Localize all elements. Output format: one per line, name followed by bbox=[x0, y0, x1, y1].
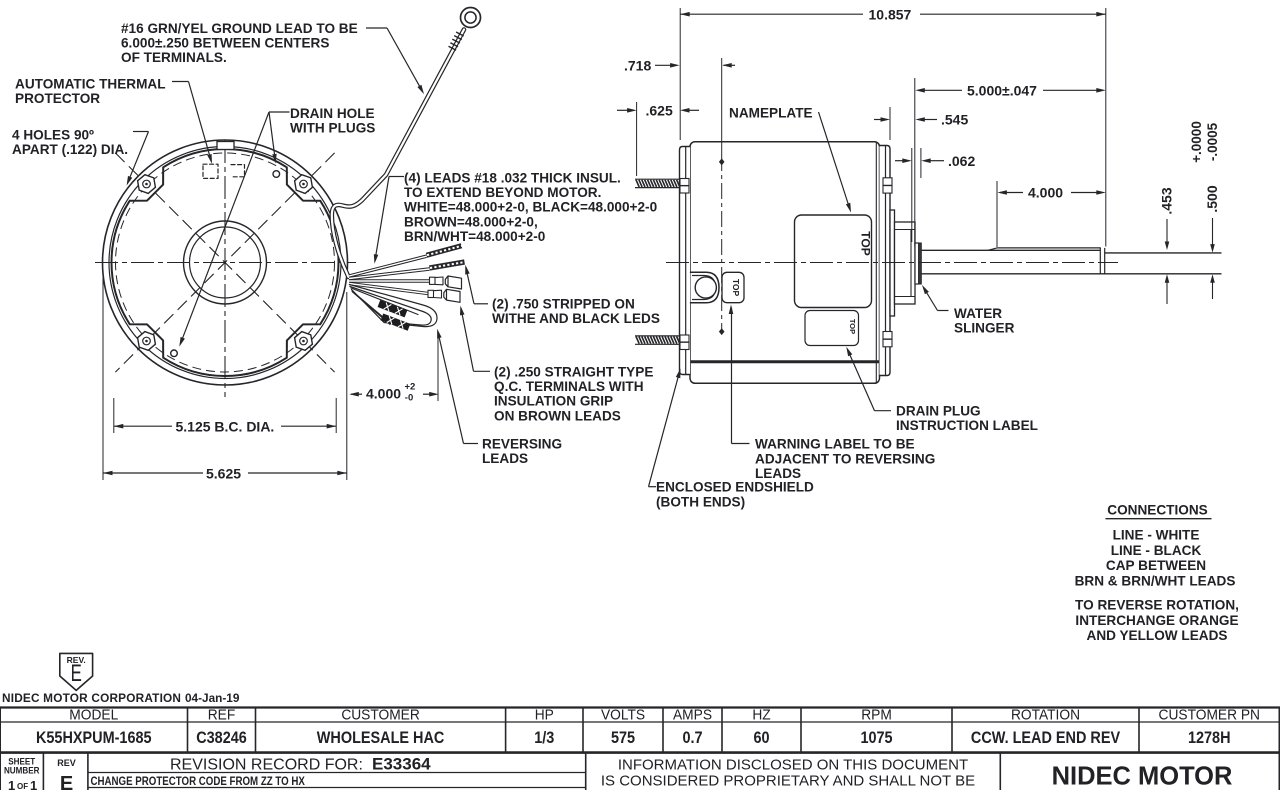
svg-text:10.857: 10.857 bbox=[869, 6, 912, 22]
svg-text:ROTATION: ROTATION bbox=[1011, 706, 1080, 722]
svg-text:(2) .250 STRAIGHT TYPE: (2) .250 STRAIGHT TYPE bbox=[494, 365, 653, 380]
svg-text:ON BROWN LEADS: ON BROWN LEADS bbox=[494, 408, 621, 423]
svg-text:WITHE AND BLACK LEDS: WITHE AND BLACK LEDS bbox=[492, 311, 660, 326]
svg-text:MODEL: MODEL bbox=[69, 706, 118, 722]
svg-text:.625: .625 bbox=[646, 103, 673, 119]
svg-text:RPM: RPM bbox=[861, 706, 892, 722]
svg-text:WATER: WATER bbox=[954, 306, 1002, 321]
svg-text:CUSTOMER: CUSTOMER bbox=[341, 706, 419, 722]
svg-text:.718: .718 bbox=[624, 58, 651, 74]
svg-text:1075: 1075 bbox=[860, 729, 892, 747]
svg-text:REVISION RECORD FOR:: REVISION RECORD FOR: bbox=[170, 757, 363, 774]
svg-text:+.0000: +.0000 bbox=[1189, 121, 1204, 163]
svg-text:.545: .545 bbox=[941, 112, 968, 128]
svg-text:WHOLESALE HAC: WHOLESALE HAC bbox=[317, 729, 445, 747]
svg-text:NAMEPLATE: NAMEPLATE bbox=[729, 105, 813, 120]
svg-text:INSTRUCTION LABEL: INSTRUCTION LABEL bbox=[896, 418, 1038, 433]
svg-text:E: E bbox=[71, 660, 82, 687]
svg-text:WITH PLUGS: WITH PLUGS bbox=[290, 121, 375, 136]
svg-text:575: 575 bbox=[611, 729, 635, 747]
svg-text:OF: OF bbox=[17, 782, 28, 790]
svg-text:4 HOLES 90º: 4 HOLES 90º bbox=[12, 128, 94, 143]
svg-text:1/3: 1/3 bbox=[534, 729, 554, 747]
svg-text:WHITE=48.000+2-0, BLACK=48.000: WHITE=48.000+2-0, BLACK=48.000+2-0 bbox=[404, 200, 657, 215]
svg-text:CHANGE PROTECTOR CODE FROM ZZ: CHANGE PROTECTOR CODE FROM ZZ TO HX bbox=[91, 775, 306, 788]
svg-text:DRAIN HOLE: DRAIN HOLE bbox=[290, 106, 375, 121]
svg-text:5.125 B.C. DIA.: 5.125 B.C. DIA. bbox=[176, 419, 275, 435]
svg-text:#16 GRN/YEL GROUND LEAD TO BE: #16 GRN/YEL GROUND LEAD TO BE bbox=[121, 21, 358, 36]
svg-text:PROTECTOR: PROTECTOR bbox=[15, 91, 100, 106]
svg-text:.453: .453 bbox=[1159, 187, 1175, 214]
svg-text:1: 1 bbox=[8, 778, 15, 790]
svg-text:6.000±.250 BETWEEN CENTERS: 6.000±.250 BETWEEN CENTERS bbox=[121, 36, 329, 51]
svg-text:(2) .750 STRIPPED ON: (2) .750 STRIPPED ON bbox=[492, 297, 635, 312]
svg-text:5.000±.047: 5.000±.047 bbox=[967, 83, 1037, 99]
svg-text:IS CONSIDERED PROPRIETARY AND: IS CONSIDERED PROPRIETARY AND SHALL NOT … bbox=[601, 773, 975, 790]
svg-text:TOP: TOP bbox=[859, 231, 873, 255]
svg-text:NIDEC MOTOR: NIDEC MOTOR bbox=[1052, 763, 1233, 790]
svg-text:REVERSING: REVERSING bbox=[482, 437, 562, 452]
svg-text:VOLTS: VOLTS bbox=[601, 706, 645, 722]
svg-text:CUSTOMER PN: CUSTOMER PN bbox=[1159, 706, 1260, 722]
svg-text:DRAIN PLUG: DRAIN PLUG bbox=[896, 404, 981, 419]
svg-text:04-Jan-19: 04-Jan-19 bbox=[185, 691, 240, 705]
svg-text:INFORMATION DISCLOSED ON THIS: INFORMATION DISCLOSED ON THIS DOCUMENT bbox=[618, 757, 968, 774]
svg-text:E33364: E33364 bbox=[372, 755, 431, 774]
svg-text:OF TERMINALS.: OF TERMINALS. bbox=[121, 50, 227, 65]
svg-text:LINE - WHITE: LINE - WHITE bbox=[1113, 528, 1200, 543]
svg-text:TOP: TOP bbox=[731, 279, 741, 297]
svg-text:(BOTH ENDS): (BOTH ENDS) bbox=[656, 494, 745, 509]
svg-text:Q.C. TERMINALS WITH: Q.C. TERMINALS WITH bbox=[494, 379, 644, 394]
svg-text:60: 60 bbox=[753, 729, 769, 747]
svg-text:C38246: C38246 bbox=[196, 729, 247, 747]
svg-text:CCW. LEAD END REV: CCW. LEAD END REV bbox=[971, 729, 1121, 747]
svg-text:AMPS: AMPS bbox=[673, 706, 712, 722]
svg-text:0.7: 0.7 bbox=[682, 729, 702, 747]
svg-text:BROWN=48.000+2-0,: BROWN=48.000+2-0, bbox=[404, 214, 538, 229]
svg-text:AUTOMATIC THERMAL: AUTOMATIC THERMAL bbox=[15, 77, 166, 92]
svg-text:-.0005: -.0005 bbox=[1205, 122, 1220, 161]
svg-text:ADJACENT TO REVERSING: ADJACENT TO REVERSING bbox=[755, 451, 935, 466]
svg-text:SLINGER: SLINGER bbox=[954, 320, 1015, 335]
svg-text:4.000: 4.000 bbox=[366, 386, 401, 402]
svg-text:TO EXTEND BEYOND MOTOR.: TO EXTEND BEYOND MOTOR. bbox=[404, 185, 601, 200]
svg-text:CONNECTIONS: CONNECTIONS bbox=[1107, 502, 1207, 517]
svg-text:AND YELLOW LEADS: AND YELLOW LEADS bbox=[1087, 628, 1228, 643]
svg-text:K55HXPUM-1685: K55HXPUM-1685 bbox=[36, 729, 152, 747]
svg-text:LEADS: LEADS bbox=[482, 451, 528, 466]
svg-text:BRN & BRN/WHT LEADS: BRN & BRN/WHT LEADS bbox=[1075, 573, 1236, 588]
svg-text:+2: +2 bbox=[405, 382, 416, 393]
svg-text:4.000: 4.000 bbox=[1028, 185, 1063, 201]
svg-text:NUMBER: NUMBER bbox=[4, 765, 39, 776]
svg-text:INSULATION GRIP: INSULATION GRIP bbox=[494, 394, 613, 409]
svg-text:(4) LEADS #18 .032 THICK INSUL: (4) LEADS #18 .032 THICK INSUL. bbox=[404, 171, 621, 186]
svg-text:INTERCHANGE ORANGE: INTERCHANGE ORANGE bbox=[1075, 613, 1238, 628]
svg-text:1: 1 bbox=[30, 778, 37, 790]
svg-text:TO REVERSE ROTATION,: TO REVERSE ROTATION, bbox=[1075, 598, 1239, 613]
svg-text:REF: REF bbox=[208, 706, 236, 722]
svg-text:LEADS: LEADS bbox=[755, 466, 801, 481]
svg-text:REV: REV bbox=[57, 758, 76, 768]
svg-text:ENCLOSED ENDSHIELD: ENCLOSED ENDSHIELD bbox=[656, 480, 814, 495]
svg-text:-0: -0 bbox=[405, 393, 413, 404]
svg-text:WARNING LABEL TO BE: WARNING LABEL TO BE bbox=[755, 437, 915, 452]
svg-text:LINE - BLACK: LINE - BLACK bbox=[1111, 543, 1202, 558]
svg-text:HZ: HZ bbox=[752, 706, 771, 722]
svg-text:NIDEC MOTOR CORPORATION: NIDEC MOTOR CORPORATION bbox=[2, 691, 181, 705]
svg-text:E: E bbox=[60, 773, 73, 790]
svg-text:1278H: 1278H bbox=[1188, 729, 1231, 747]
svg-text:BRN/WHT=48.000+2-0: BRN/WHT=48.000+2-0 bbox=[404, 229, 545, 244]
svg-text:.062: .062 bbox=[948, 153, 975, 169]
svg-text:HP: HP bbox=[535, 706, 554, 722]
svg-text:TOP: TOP bbox=[848, 319, 857, 334]
svg-text:APART (.122) DIA.: APART (.122) DIA. bbox=[12, 142, 128, 157]
svg-text:5.625: 5.625 bbox=[206, 465, 241, 481]
svg-text:.500: .500 bbox=[1204, 185, 1220, 212]
svg-text:CAP BETWEEN: CAP BETWEEN bbox=[1106, 558, 1206, 573]
